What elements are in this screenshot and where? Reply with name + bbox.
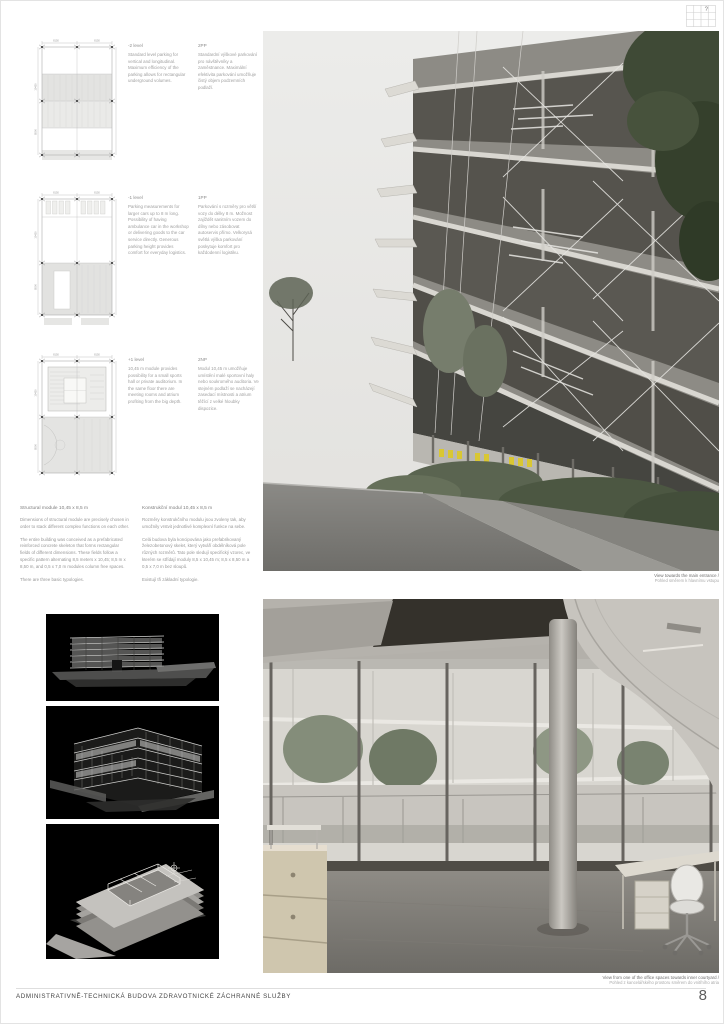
dim-label: 10450: [34, 83, 38, 91]
footer-divider: [16, 988, 706, 989]
text-paragraph: Dimensions of structural module are prec…: [20, 517, 130, 531]
caption-body-en: 10,45 m module provides possibility for …: [128, 366, 189, 406]
dim-label: 8150: [53, 353, 59, 357]
caption-line-cz: Pohled z kancelářského prostoru směrem d…: [463, 980, 719, 985]
dim-label: 8500: [34, 444, 38, 450]
exterior-rendering: [263, 31, 719, 571]
floor-plan-level-plus-1: 8150 8150 10450 8500: [34, 351, 120, 483]
dim-label: 8150: [53, 191, 59, 195]
text-paragraph: There are three basic typologies.: [20, 577, 130, 584]
text-paragraph: Celá budova byla koncipována jako prefab…: [142, 537, 254, 571]
board-title: ADMINISTRATIVNĚ-TECHNICKÁ BUDOVA ZDRAVOT…: [16, 993, 291, 1000]
floor-plan-level-minus-1: 8150 8150 10450 8500: [34, 187, 120, 329]
floor-plan-level-minus-2: 8150 8150 10450 8500: [34, 37, 120, 165]
model-photo-structure-axon: [46, 706, 219, 819]
text-paragraph: The entire building was conceived as a p…: [20, 537, 130, 571]
caption-body-cz: Modul 10,45 m umožňuje umístění malé spo…: [198, 366, 259, 412]
caption-body-cz: Standardní výškové parkování pro návštěv…: [198, 52, 259, 92]
model-photo-elevation: [46, 614, 219, 701]
plan-caption-level-minus-1: -1 level Parking measurements for larger…: [128, 195, 260, 257]
interior-render-caption: View from one of the office spaces towar…: [463, 975, 719, 985]
caption-heading-en: -1 level: [128, 195, 189, 200]
plan-caption-level-minus-2: -2 level Standard level parking for vert…: [128, 43, 260, 92]
panel-locator-grid: ?: [686, 5, 716, 27]
dim-label: 10450: [34, 231, 38, 239]
plan-caption-level-plus-1: +1 level 10,45 m module provides possibi…: [128, 357, 260, 412]
caption-heading-en: +1 level: [128, 357, 189, 362]
dim-label: 10450: [34, 389, 38, 397]
caption-heading-cz: 1PP: [198, 195, 259, 200]
interior-rendering: [263, 599, 719, 973]
caption-line-cz: Pohled směrem k hlavnímu vstupu: [463, 578, 719, 583]
text-paragraph: Existují tři základní typologie.: [142, 577, 254, 584]
dim-label: 8150: [53, 39, 59, 43]
caption-heading-en: -2 level: [128, 43, 189, 48]
dim-label: 8150: [94, 191, 100, 195]
text-heading-en: Structural module 10,45 x 8,5 m: [20, 506, 130, 511]
dim-label: 8500: [34, 129, 38, 135]
structural-module-text: Structural module 10,45 x 8,5 m Dimensio…: [20, 506, 260, 590]
dim-label: 8500: [34, 284, 38, 290]
caption-heading-cz: 2NP: [198, 357, 259, 362]
page-number: 8: [699, 987, 707, 1004]
dim-label: 8150: [94, 39, 100, 43]
dim-label: 8150: [94, 353, 100, 357]
caption-heading-cz: 2PP: [198, 43, 259, 48]
caption-body-en: Parking measurements for larger cars up …: [128, 204, 189, 257]
text-heading-cz: Konstrukční modul 10,45 x 8,5 m: [142, 506, 254, 511]
caption-body-en: Standard level parking for vertical and …: [128, 52, 189, 85]
presentation-board: ? 8150 8150 10450 8500: [0, 0, 724, 1024]
model-photo-aerial-massing: [46, 824, 219, 959]
text-paragraph: Rozměry konstrukčního modulu jsou zvolen…: [142, 517, 254, 531]
caption-body-cz: Parkování s rozměry pro větší vozy do dé…: [198, 204, 259, 257]
exterior-render-caption: View towards the main entrance / Pohled …: [463, 573, 719, 583]
